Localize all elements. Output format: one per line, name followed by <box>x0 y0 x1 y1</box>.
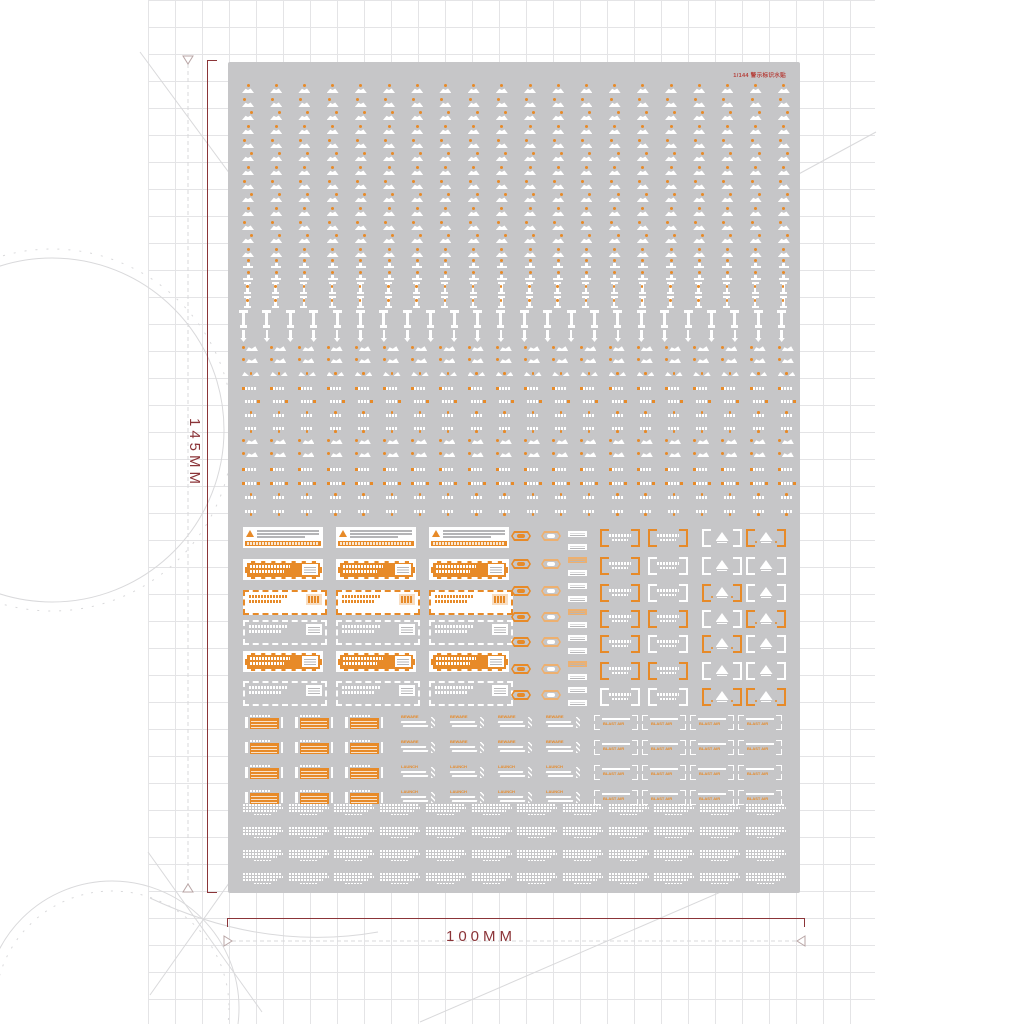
swoosh <box>613 358 625 363</box>
decal-beware-label: BEWARE <box>449 740 484 755</box>
fine-print-line <box>563 876 603 878</box>
orange-dot <box>560 430 563 433</box>
orange-dot <box>331 125 334 128</box>
orange-dot <box>610 139 613 142</box>
orange-dot <box>440 180 443 183</box>
white-mound <box>355 170 367 175</box>
white-mound <box>778 225 790 230</box>
fine-print-line <box>472 810 506 812</box>
sheet-code-label: 1/144 警示标识水贴 <box>733 71 786 79</box>
warning-triangle <box>760 665 773 674</box>
base <box>708 325 715 328</box>
orange-dot <box>270 452 273 455</box>
decal-hex-badge <box>541 690 561 700</box>
orange-dot <box>757 493 760 496</box>
plate-lines <box>570 624 585 627</box>
white-mound <box>580 211 592 216</box>
white-mound <box>778 184 790 189</box>
orange-dot <box>298 346 301 349</box>
decal-text-token <box>665 398 683 405</box>
bracket-text <box>612 645 628 648</box>
orange-dot <box>645 193 648 196</box>
hazard-edge <box>576 717 580 728</box>
white-mound <box>298 115 310 120</box>
decal-pedestal-mark <box>299 259 309 268</box>
decal-caution-mark <box>327 84 339 93</box>
decal-caution-mark <box>637 180 649 189</box>
warning-triangle <box>760 613 773 622</box>
swoosh <box>274 452 286 457</box>
tiny-text <box>442 496 454 500</box>
orange-core <box>350 743 379 754</box>
corner <box>631 593 640 602</box>
corner <box>733 593 742 602</box>
decal-caution-mark <box>524 98 536 107</box>
top-line <box>746 793 774 795</box>
fine-print-line <box>426 850 464 852</box>
swoosh <box>242 372 249 376</box>
orange-dot <box>247 248 250 251</box>
orange-dot <box>243 180 246 183</box>
corner <box>728 749 734 755</box>
orange-dot <box>750 439 753 442</box>
fine-print-line <box>711 860 729 862</box>
orange-dot <box>440 139 443 142</box>
swoosh <box>468 372 475 376</box>
decal-swoosh-mark <box>383 452 399 458</box>
decal-caution-mark <box>552 248 564 257</box>
orange-strip <box>431 541 507 546</box>
decal-ibeam-mark <box>470 296 477 308</box>
decal-bracket-text <box>648 584 688 602</box>
decal-bracket-triangle <box>702 635 742 653</box>
top-text <box>300 715 320 717</box>
stem <box>359 313 362 325</box>
corner <box>648 688 657 697</box>
decal-swoosh-pair <box>750 371 767 377</box>
decal-caution-mark <box>411 193 423 202</box>
orange-dot <box>275 248 278 251</box>
corner <box>679 593 688 602</box>
decal-pedestal-mark <box>666 271 676 280</box>
end-cap <box>245 767 248 778</box>
orange-dot <box>391 372 394 375</box>
decal-swoosh-mark <box>637 439 653 445</box>
orange-dot <box>387 285 389 287</box>
white-mound <box>750 156 762 161</box>
fine-print-line <box>517 850 555 852</box>
fine-print-line <box>700 879 734 881</box>
decal-pedestal-mark <box>469 259 479 268</box>
swoosh <box>472 452 484 457</box>
corner <box>702 662 711 671</box>
orange-dot <box>758 152 761 155</box>
orange-box <box>524 482 527 485</box>
bottom-bar <box>329 292 336 294</box>
orange-dot <box>782 166 785 169</box>
orange-dot <box>729 513 732 516</box>
decal-caution-mark <box>552 152 564 161</box>
white-mound <box>411 184 423 189</box>
fine-print-line <box>472 830 512 832</box>
decal-fine-print-block <box>426 873 466 887</box>
white-mound <box>778 238 790 243</box>
orange-dot <box>711 700 713 702</box>
orange-dot <box>327 439 330 442</box>
orange-panel <box>245 653 322 671</box>
decal-arrow-down <box>521 330 528 342</box>
decal-pedestal-mark <box>779 259 789 268</box>
orange-dot <box>751 180 754 183</box>
decal-warning-label-striped <box>336 559 416 580</box>
orange-dot <box>496 452 499 455</box>
orange-dot <box>616 411 619 414</box>
corner <box>733 635 742 644</box>
white-mound <box>693 211 705 216</box>
orange-dot <box>468 358 471 361</box>
decal-swoosh-mark <box>270 452 286 458</box>
label-text <box>342 686 380 689</box>
white-mound <box>327 225 339 230</box>
orange-box <box>496 468 499 471</box>
white-mound <box>496 115 508 120</box>
decal-caution-mark <box>665 98 677 107</box>
orange-dot <box>391 234 394 237</box>
decal-swoosh-mark <box>327 358 343 364</box>
decal-text-token <box>270 466 288 473</box>
decal-caution-mark <box>242 125 254 134</box>
blast-air-word: BLAST AIR <box>651 797 672 801</box>
white-mound <box>439 102 451 107</box>
hex-core <box>547 562 555 566</box>
orange-dot <box>270 439 273 442</box>
white-mound <box>355 115 367 120</box>
tiny-text <box>358 482 370 486</box>
top-line <box>698 743 726 745</box>
corner <box>777 697 786 706</box>
orange-dot <box>557 125 560 128</box>
white-mound <box>721 238 733 243</box>
triangle-caption <box>717 597 727 598</box>
white-mound <box>552 184 564 189</box>
decal-arrow-down <box>404 330 411 342</box>
stem <box>593 330 596 338</box>
base <box>357 325 364 328</box>
corner <box>600 610 609 619</box>
orange-dot <box>363 193 366 196</box>
decal-warning-label-header <box>336 527 416 548</box>
decal-caution-mark <box>609 152 621 161</box>
fine-print-line <box>426 807 466 809</box>
white-mound <box>383 115 395 120</box>
corner <box>728 715 734 721</box>
orange-dot <box>645 111 648 114</box>
white-mound <box>298 143 310 148</box>
white-mound <box>439 170 451 175</box>
orange-dot <box>362 430 365 433</box>
orange-dot <box>670 125 673 128</box>
orange-dot <box>250 152 253 155</box>
decal-caution-mark <box>298 234 310 243</box>
orange-dot <box>270 358 273 361</box>
tiny-text <box>499 387 511 391</box>
tiny-text <box>555 468 567 472</box>
stem <box>523 313 526 325</box>
decal-caution-mark <box>270 221 282 230</box>
base <box>310 325 317 328</box>
orange-box <box>257 482 260 485</box>
fine-print-line <box>243 856 277 858</box>
decal-caution-mark <box>242 180 254 189</box>
orange-dot <box>645 234 648 237</box>
decal-ibeam-mark <box>752 282 759 294</box>
corner <box>738 774 744 780</box>
decal-caution-mark <box>552 207 564 216</box>
orange-dot <box>334 513 337 516</box>
base <box>685 325 692 328</box>
tiny-text <box>640 468 652 472</box>
decal-beware-label: LAUNCH <box>545 790 580 805</box>
decal-caution-mark <box>383 221 395 230</box>
decal-swoosh-pair <box>552 371 569 377</box>
decal-mini-plate <box>568 622 587 628</box>
orange-dot <box>641 166 644 169</box>
base <box>384 266 394 268</box>
fine-print-line <box>700 873 738 875</box>
decal-caution-mark <box>580 98 592 107</box>
decal-swoosh-mark <box>468 358 484 364</box>
corner <box>631 610 640 619</box>
swoosh <box>665 372 672 376</box>
plate-lines <box>570 637 585 640</box>
orange-dot <box>306 513 309 516</box>
orange-dot <box>698 166 701 169</box>
plate-lines <box>570 611 585 614</box>
orange-dot <box>637 358 640 361</box>
decal-bracket-triangle <box>702 557 742 575</box>
orange-dot <box>529 248 532 251</box>
top-text <box>300 740 320 742</box>
decal-pedestal-mark <box>497 259 507 268</box>
swoosh <box>669 452 681 457</box>
decal-swoosh-pair <box>693 371 710 377</box>
decal-pedestal-mark <box>243 259 253 268</box>
fine-print-line <box>472 833 506 835</box>
beware-word: LAUNCH <box>498 765 515 769</box>
corner <box>600 644 609 653</box>
base <box>287 325 294 328</box>
orange-dot <box>270 346 273 349</box>
orange-dot <box>726 285 728 287</box>
white-mound <box>355 102 367 107</box>
swoosh <box>359 439 371 444</box>
fine-print-line <box>391 883 409 885</box>
decal-swoosh-mark <box>609 439 625 445</box>
bottom-bar <box>611 306 618 308</box>
orange-dot <box>447 430 450 433</box>
decal-caution-mark <box>496 98 508 107</box>
decal-caution-mark <box>411 84 423 93</box>
swoosh <box>725 358 737 363</box>
triangle-caption <box>717 623 727 624</box>
white-mound <box>665 225 677 230</box>
decal-caution-mark <box>524 125 536 134</box>
corner <box>594 740 600 746</box>
corner <box>679 584 688 593</box>
white-box <box>306 624 322 635</box>
fine-print-line <box>334 827 372 829</box>
white-mound <box>750 170 762 175</box>
orange-panel <box>431 561 508 579</box>
swoosh <box>669 346 681 351</box>
orange-box <box>609 468 612 471</box>
bracket-text <box>657 667 679 670</box>
orange-box <box>242 387 245 390</box>
corner <box>776 715 782 721</box>
decal-pedestal-mark <box>638 271 648 280</box>
tiny-text <box>442 387 454 391</box>
tiny-text <box>442 414 454 418</box>
decal-pedestal-mark <box>694 271 704 280</box>
tiny-text <box>781 468 793 472</box>
orange-dot <box>757 372 760 375</box>
decal-text-token <box>270 480 288 487</box>
white-mound <box>637 143 649 148</box>
tiny-text <box>358 496 370 500</box>
white-mound <box>665 170 677 175</box>
decal-caution-mark <box>693 221 705 230</box>
decal-text-token <box>693 398 711 405</box>
decal-caution-mark <box>298 207 310 216</box>
beware-word: BEWARE <box>546 715 564 719</box>
orange-dot <box>580 452 583 455</box>
orange-dot <box>356 98 359 101</box>
fine-print-line <box>300 860 318 862</box>
corner <box>631 662 640 671</box>
corner <box>600 635 609 644</box>
text-line <box>403 775 428 777</box>
box-lines <box>304 566 316 573</box>
label-text <box>249 691 281 694</box>
orange-dot <box>275 84 278 87</box>
decal-ibeam-mark <box>385 282 392 294</box>
tiny-text <box>527 482 539 486</box>
orange-box <box>624 482 627 485</box>
top-text <box>250 790 270 792</box>
fine-print-line <box>700 833 734 835</box>
top-line <box>650 743 678 745</box>
orange-dot <box>278 372 281 375</box>
white-mound <box>242 197 254 202</box>
text-line <box>401 796 426 798</box>
orange-core <box>250 793 279 804</box>
orange-dot <box>388 84 391 87</box>
corner <box>777 671 786 680</box>
decal-text-token <box>468 508 486 515</box>
orange-dot <box>553 221 556 224</box>
fine-print-line <box>334 833 368 835</box>
stem <box>336 330 339 338</box>
orange-dot <box>585 248 588 251</box>
decal-blast-air-label: BLAST AIR <box>642 715 686 730</box>
tiny-text <box>414 482 426 486</box>
head <box>544 338 551 343</box>
orange-box <box>524 468 527 471</box>
white-mound <box>242 143 254 148</box>
decal-caution-mark <box>637 111 649 120</box>
corner <box>648 538 657 547</box>
white-mound <box>637 129 649 134</box>
decal-caution-mark <box>327 111 339 120</box>
white-mound <box>637 88 649 93</box>
decal-caution-mark <box>637 125 649 134</box>
label-text <box>342 595 380 598</box>
orange-box <box>552 387 555 390</box>
white-mound <box>355 88 367 93</box>
corner <box>632 724 638 730</box>
decal-swoosh-mark <box>609 346 625 352</box>
decal-caution-mark <box>665 152 677 161</box>
stem <box>429 330 432 338</box>
orange-dot <box>701 111 704 114</box>
hex-core <box>517 589 525 593</box>
orange-core <box>350 768 379 779</box>
decal-text-token <box>468 398 486 405</box>
orange-dot <box>726 299 728 301</box>
tiny-text <box>696 496 708 500</box>
decal-swoosh-mark <box>298 452 314 458</box>
decal-swoosh-mark <box>524 358 540 364</box>
fine-print-line <box>289 876 329 878</box>
decal-caution-mark <box>693 152 705 161</box>
width-dimension-label: 100MM <box>446 928 516 945</box>
text-line <box>452 775 477 777</box>
orange-dot <box>391 493 394 496</box>
white-mound <box>750 238 762 243</box>
fine-print-line <box>609 827 647 829</box>
decal-caution-mark <box>721 221 733 230</box>
decal-text-token <box>468 494 486 501</box>
decal-caution-mark <box>298 139 310 148</box>
orange-dot <box>416 166 419 169</box>
tiny-text <box>724 387 736 391</box>
orange-dot <box>641 248 644 251</box>
corner <box>679 529 688 538</box>
orange-dot <box>419 372 422 375</box>
tiny-text <box>245 468 257 472</box>
tiny-text <box>330 414 342 418</box>
orange-dot <box>503 411 506 414</box>
white-mound <box>270 252 282 257</box>
decal-swoosh-mark <box>552 452 568 458</box>
orange-dot <box>779 221 782 224</box>
head <box>614 338 621 343</box>
fine-print-line <box>563 804 601 806</box>
decal-swoosh-pair <box>242 371 259 377</box>
swoosh <box>383 372 390 376</box>
decal-hex-badge <box>511 559 531 569</box>
decal-striped-plate <box>345 790 383 805</box>
decal-text-token <box>355 480 373 487</box>
decal-warning-label-striped <box>336 651 416 672</box>
decal-caution-mark <box>411 139 423 148</box>
fine-print-line <box>563 830 603 832</box>
white-mound <box>665 184 677 189</box>
decal-text-token <box>552 412 570 419</box>
box-lines <box>397 658 409 665</box>
white-mound <box>242 238 254 243</box>
orange-dot <box>497 98 500 101</box>
